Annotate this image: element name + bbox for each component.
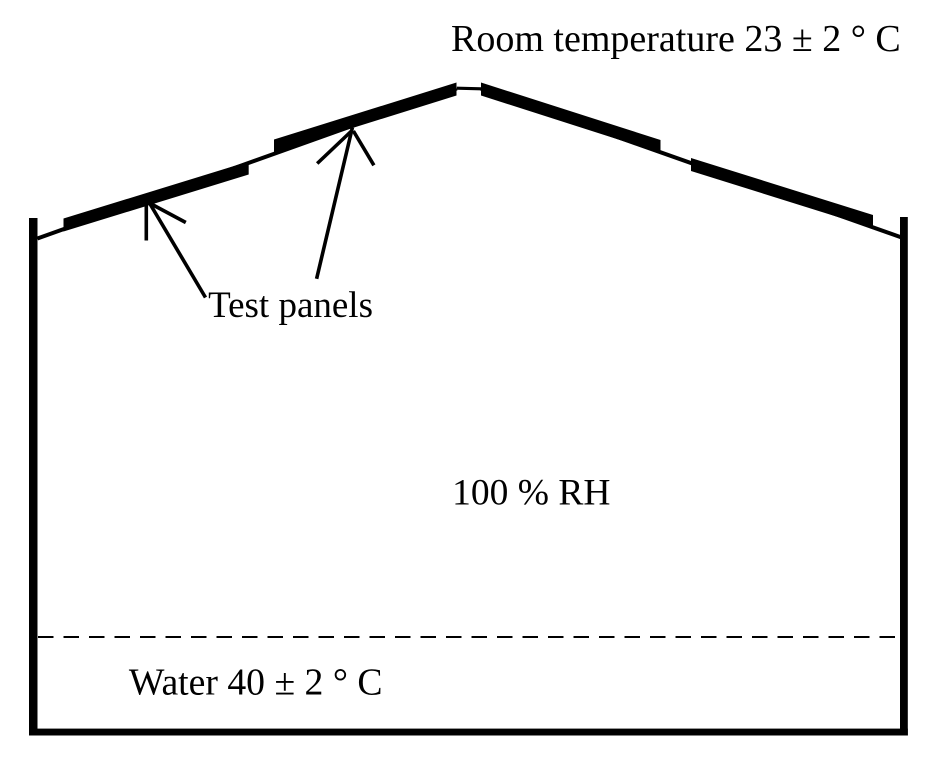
- svg-text:Room temperature 23 ± 2 ° C: Room temperature 23 ± 2 ° C: [451, 18, 901, 60]
- svg-text:100 % RH: 100 % RH: [452, 473, 610, 514]
- svg-text:Water 40 ± 2 ° C: Water 40 ± 2 ° C: [129, 661, 383, 703]
- svg-text:Test panels: Test panels: [208, 285, 373, 326]
